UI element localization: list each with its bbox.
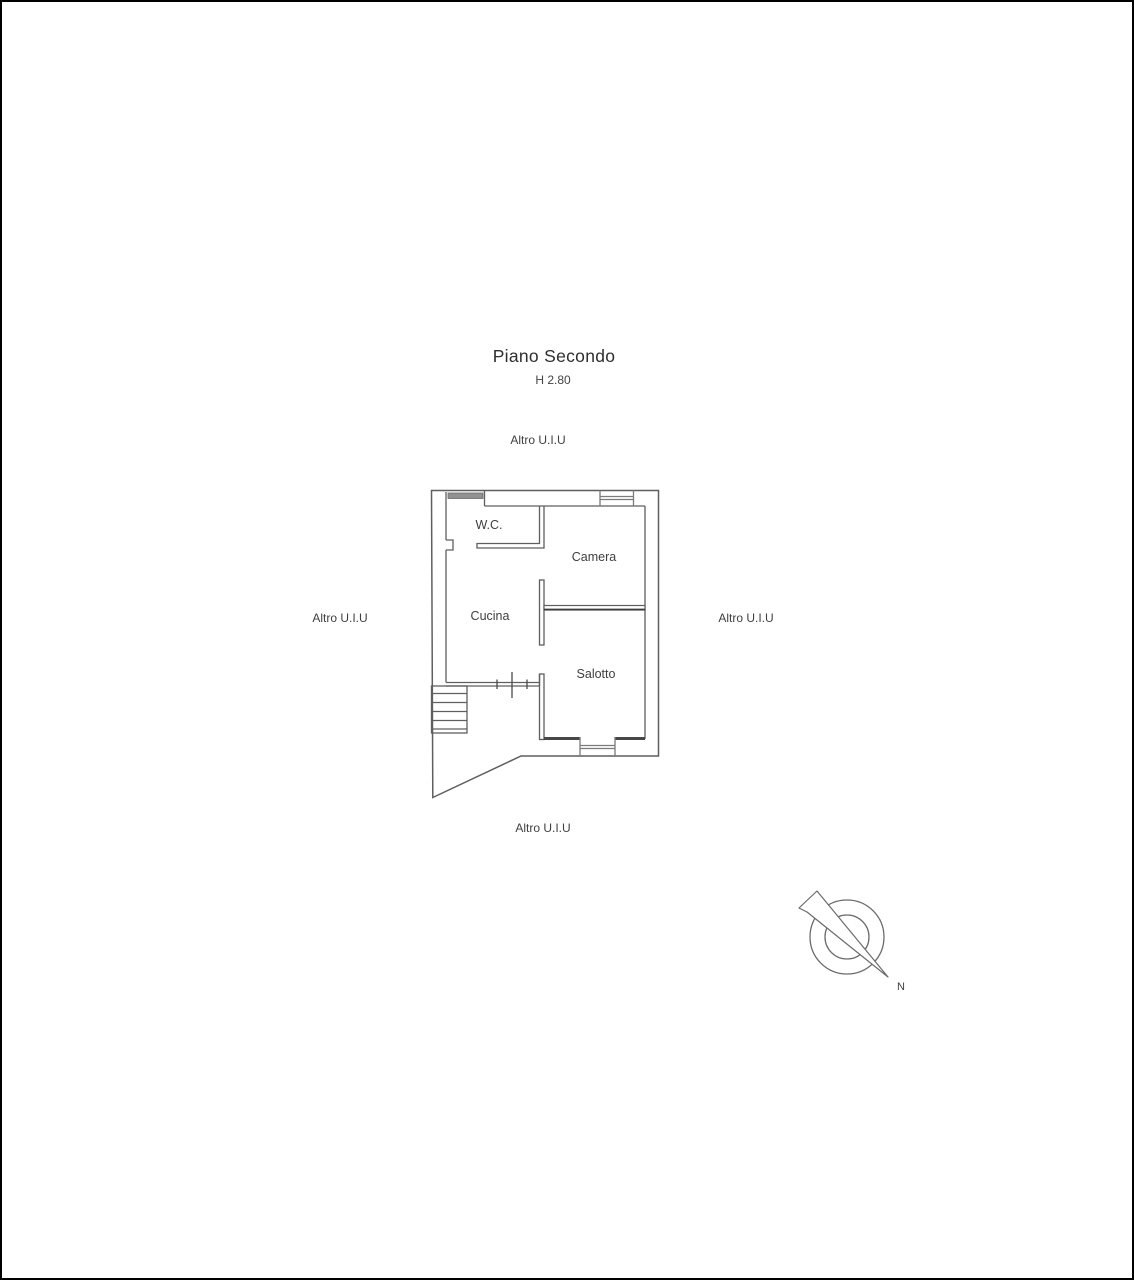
floor-plan-drawing [2,2,1134,1280]
north-label: N [897,981,905,993]
ceiling-height-label: H 2.80 [535,373,570,387]
floor-plan-page: Piano Secondo H 2.80 Altro U.I.U Altro U… [0,0,1134,1280]
room-label-cucina: Cucina [471,609,510,623]
window-top [600,491,634,507]
room-label-camera: Camera [572,550,616,564]
adjacent-unit-label-top: Altro U.I.U [510,433,565,447]
room-label-salotto: Salotto [577,667,616,681]
adjacent-unit-label-left: Altro U.I.U [312,611,367,625]
salotto-bottom-wall [544,737,645,740]
cucina-bottom-wall [446,674,540,686]
adjacent-unit-label-bottom: Altro U.I.U [515,821,570,835]
page-title: Piano Secondo [493,346,616,367]
mid-partition-wall [540,580,545,740]
wall-hatch-block [448,493,483,499]
room-label-wc: W.C. [475,518,502,532]
north-compass-icon [799,891,888,977]
adjacent-unit-label-right: Altro U.I.U [718,611,773,625]
stairs [432,686,468,733]
camera-salotto-wall [544,606,645,611]
outer-walls [432,491,659,798]
window-bottom [580,737,615,756]
cucina-door-marks [497,672,527,698]
